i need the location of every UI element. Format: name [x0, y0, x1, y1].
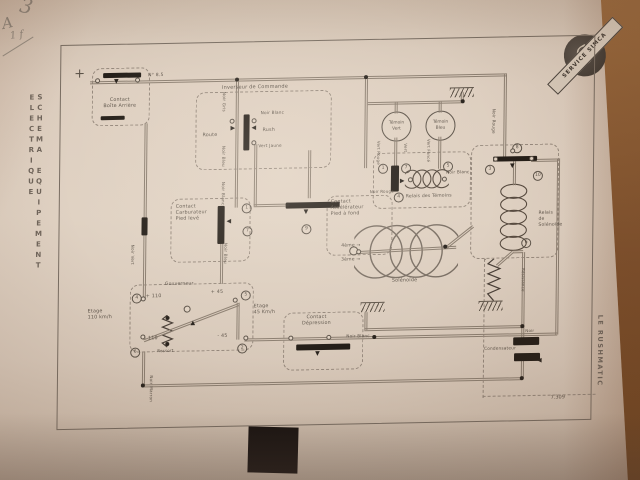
- wire-label: Noir Bleu: [221, 146, 227, 167]
- black-patch: [247, 426, 298, 473]
- solenoide-label: Solénoïde: [392, 278, 417, 285]
- inverseur-label: Inverseur de Commande: [222, 84, 288, 92]
- wire-label: Noir Rouge: [370, 189, 394, 195]
- wire: [142, 351, 145, 387]
- contact-boite-label: Contact Boîte Arrière: [92, 97, 148, 111]
- contact-depression-label: Contact Dépression: [286, 315, 346, 329]
- relais-temoins-box: [373, 151, 472, 209]
- ground-icon: [479, 301, 503, 311]
- ressort-label: Ressort: [157, 348, 173, 354]
- stage-value: + 45: [211, 290, 224, 296]
- rush-label: Rush: [262, 128, 275, 134]
- wire-label: Vert Rouge: [376, 141, 381, 165]
- wire: [364, 312, 367, 330]
- photo-of-wiring-diagram: 3 A 1 f S SERVICE SIMCA SCHEMA EQUIPEMEN…: [0, 0, 640, 480]
- gouverneur-label: Gouverneur: [165, 281, 194, 287]
- wire-label: Noir Rouge: [491, 109, 497, 134]
- wire-label: Vert Foncé: [426, 139, 431, 162]
- stage-value: - 45: [217, 334, 227, 340]
- etage-110-label: Etage 110 km/h: [88, 309, 113, 322]
- wire: [439, 102, 442, 113]
- arrow-icon: ◀: [227, 219, 232, 225]
- arrow-icon: ▶: [400, 178, 405, 184]
- wire: [395, 103, 398, 114]
- right-margin-title: LE RUSHMATIC: [595, 315, 604, 425]
- left-margin-title: SCHEMA EQUIPEMENT ELECTRIQUE: [25, 93, 44, 383]
- gear-3-label: 3ème →: [341, 257, 360, 263]
- stage-value: + 110: [146, 294, 162, 301]
- wire-label: Noir Blanc: [220, 182, 226, 206]
- condensateur-label: Condensateur: [484, 345, 516, 351]
- contact-accelerateur-label: Contact Accélérateur Pied à fond: [331, 199, 364, 218]
- plus-terminal-label: +: [74, 67, 85, 84]
- wire-label: Noir: [525, 328, 534, 333]
- resistance-zigzag: [485, 259, 503, 303]
- wire-gauge-label: N° 8.5: [148, 73, 163, 79]
- contact-bar: [101, 116, 125, 120]
- contact-carburateur-label: Contact Carburateur Pied levé: [176, 204, 208, 223]
- wire: [254, 204, 286, 208]
- arrow-icon: ◀: [537, 358, 542, 364]
- route-label: Route: [202, 133, 217, 140]
- etage-45-label: Etage 45 Km/h: [254, 304, 276, 317]
- arrow-icon: ▼: [315, 351, 320, 357]
- arrow-icon: ▼: [114, 79, 119, 85]
- relais-solenoide-label: Relais de Solénoïde: [538, 210, 562, 228]
- wire-label: Vert: [403, 143, 408, 152]
- arrow-icon: ▶: [230, 126, 235, 132]
- inverseur-switch-bar: [243, 114, 249, 150]
- ground-icon: [361, 302, 385, 312]
- depression-contact-bar: [296, 343, 350, 350]
- arrow-icon: ▼: [304, 209, 309, 215]
- wire-label: Noir Bleu: [223, 243, 229, 264]
- wire-label: Vert Jaune: [258, 143, 282, 149]
- arrow-icon: ▼: [510, 163, 515, 169]
- arrow-icon: ▲: [190, 320, 195, 326]
- ground-icon: [450, 87, 474, 97]
- wire-label: Noir Marron: [148, 375, 154, 402]
- wire-label: Noir Blanc: [261, 110, 285, 116]
- arrow-icon: ◀: [251, 125, 256, 131]
- wire-label: Noir Blanc: [346, 333, 370, 339]
- stage-value: - 110: [144, 336, 157, 342]
- carburateur-contact-bar: [217, 206, 224, 244]
- relais-temoins-label: Relais des Témoins: [406, 193, 452, 200]
- wire-label: Noir Gris: [221, 92, 227, 112]
- condensateur-plate: [513, 337, 539, 346]
- wire-label: Noir Vert: [130, 245, 136, 265]
- wire-connector: [141, 217, 147, 235]
- resistance-label: Résistance: [521, 268, 526, 292]
- schematic: SCHEMA EQUIPEMENT ELECTRIQUE LE RUSHMATI…: [0, 0, 640, 480]
